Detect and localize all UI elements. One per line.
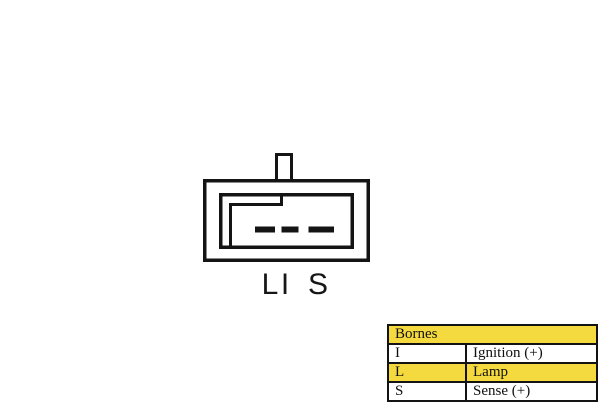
table-header-row: Bornes	[388, 325, 597, 344]
terminal-cell: I	[388, 344, 466, 363]
connector-tab	[277, 155, 292, 182]
pin-labels: L I S	[0, 270, 600, 304]
table-row: L Lamp	[388, 363, 597, 382]
page: L I S Bornes I Ignition (+) L Lamp S Sen…	[0, 0, 600, 400]
connector-inner-cavity	[221, 195, 353, 248]
description-cell: Ignition (+)	[466, 344, 597, 363]
pin-label-l: L	[262, 270, 279, 300]
description-cell: Lamp	[466, 363, 597, 382]
table-row: S Sense (+)	[388, 382, 597, 401]
description-cell: Sense (+)	[466, 382, 597, 401]
terminal-cell: L	[388, 363, 466, 382]
table-header-cell: Bornes	[388, 325, 597, 344]
table-row: I Ignition (+)	[388, 344, 597, 363]
terminal-table: Bornes I Ignition (+) L Lamp S Sense (+)	[387, 324, 598, 402]
pin-label-i: I	[281, 270, 289, 300]
pin-dash-l	[255, 227, 275, 233]
pin-label-s: S	[308, 270, 328, 300]
pin-dash-s	[309, 227, 335, 233]
terminal-cell: S	[388, 382, 466, 401]
pin-dash-i	[282, 227, 299, 233]
